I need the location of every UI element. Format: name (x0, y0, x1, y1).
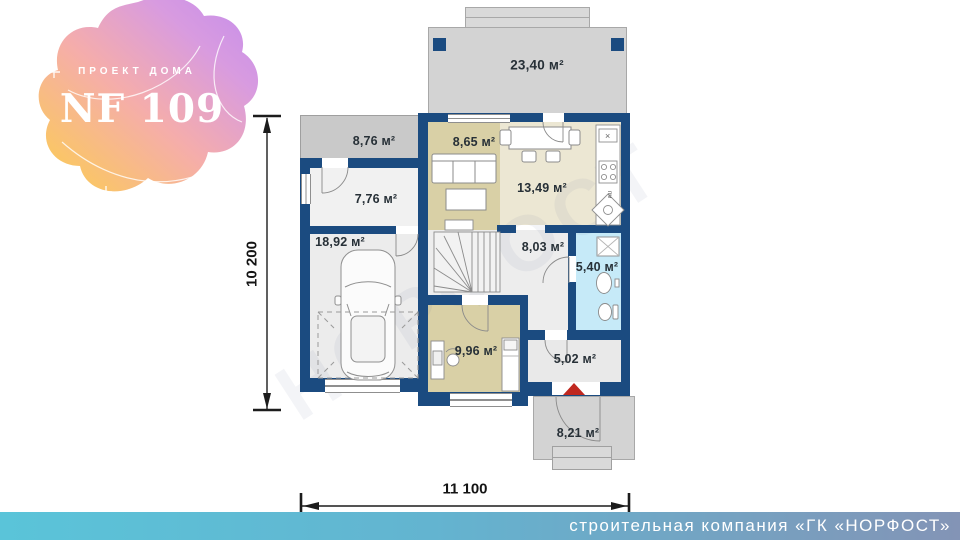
footer-bar: строительная компания «ГК «НОРФОСТ» (0, 512, 960, 540)
door-opening-balcony (322, 158, 348, 168)
room-area-label-entry: 5,02 м² (554, 352, 597, 366)
room-area-label-garage: 18,92 м² (315, 235, 365, 249)
wall-wing-top (300, 158, 418, 168)
wall-bathroom-left (568, 225, 576, 340)
footer-company-name: строительная компания «ГК «НОРФОСТ» (569, 516, 951, 536)
door-opening-terrace (543, 113, 564, 122)
room-area-label-cabinet: 9,96 м² (455, 344, 498, 358)
garage-floor (310, 234, 418, 378)
wall-main-right (621, 113, 630, 396)
door-opening-cabinet (462, 295, 488, 305)
door-opening-entry (545, 330, 567, 340)
door-opening-garage (396, 226, 418, 234)
wall-dining-bottom-right (545, 225, 630, 233)
logo-title: NF 109 (47, 86, 237, 132)
terrace-column-right (611, 38, 624, 51)
room-area-label-balcony: 8,76 м² (353, 134, 396, 148)
dimension-height-label: 10 200 (244, 241, 261, 287)
room-area-label-bathroom: 5,40 м² (576, 260, 619, 274)
porch-step-lower (552, 457, 612, 470)
room-area-label-hall-776: 7,76 м² (355, 192, 398, 206)
garage-gate-opening (325, 379, 400, 393)
room-area-label-kitchen-dining: 13,49 м² (517, 181, 567, 195)
room-area-label-hall: 8,03 м² (522, 240, 565, 254)
room-area-label-terrace: 23,40 м² (510, 58, 564, 73)
room-area-label-living: 8,65 м² (453, 135, 496, 149)
wall-dining-bottom-left (497, 225, 516, 233)
wall-main-left (418, 113, 428, 406)
bathroom-floor (576, 233, 621, 330)
entrance-opening (552, 382, 600, 395)
logo-tagline: ПРОЕКТ ДОМА (57, 66, 217, 77)
kitchen-dining-floor (500, 122, 621, 225)
dimension-width-label: 11 100 (442, 481, 487, 498)
wall-cabinet-right (520, 295, 528, 396)
window-cabinet-bottom (450, 393, 512, 407)
terrace-column-left (433, 38, 446, 51)
window-living-top (448, 114, 510, 123)
window-hall-776-left (301, 174, 311, 204)
room-area-label-porch: 8,21 м² (557, 426, 600, 440)
wall-hall-entry (528, 330, 630, 340)
